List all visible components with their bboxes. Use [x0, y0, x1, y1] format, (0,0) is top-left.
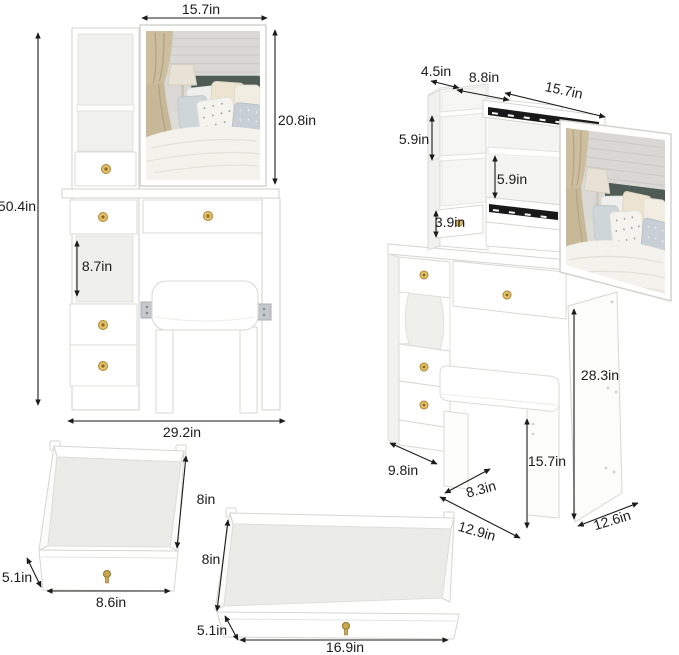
- dim-front-mirror-height: 20.8in: [278, 113, 316, 127]
- side-panel: [568, 292, 622, 522]
- dim-side-stool-height: 15.7in: [528, 454, 566, 468]
- dim-wide-drawer-depth: 8in: [202, 552, 221, 566]
- dim-side-small-drawer: 3.9in: [435, 215, 465, 229]
- dim-small-drawer-width: 8.6in: [96, 595, 126, 609]
- side-wide-drawer: [453, 261, 566, 319]
- front-mirror: [140, 25, 266, 186]
- dim-front-mirror-width: 15.7in: [182, 2, 220, 16]
- front-stool: [141, 281, 271, 413]
- dim-side-desk-height: 28.3in: [581, 368, 619, 382]
- dim-front-total-height: 50.4in: [0, 199, 36, 213]
- side-stool: [440, 366, 559, 518]
- dim-side-middle-shelf: 5.9in: [497, 172, 527, 186]
- dim-front-total-width: 29.2in: [163, 425, 201, 439]
- side-mirror: [560, 120, 671, 308]
- dim-wide-drawer-width: 16.9in: [326, 640, 364, 654]
- dim-side-upper-shelf: 5.9in: [399, 132, 429, 146]
- vanity-dimension-diagram: 15.7in 20.8in 50.4in 8.7in 29.2in 4.5in …: [0, 0, 679, 655]
- front-view-vanity: [62, 25, 280, 413]
- dim-wide-drawer-height: 5.1in: [197, 623, 227, 637]
- dim-small-drawer-depth: 8in: [197, 492, 216, 506]
- dim-front-shelf-height: 8.7in: [82, 259, 112, 273]
- front-open-cubby: [78, 34, 133, 105]
- dim-small-drawer-height: 5.1in: [2, 570, 32, 584]
- small-drawer-illustration: [39, 441, 186, 591]
- wide-drawer-illustration: [215, 508, 459, 639]
- dim-side-top-shelf-width: 8.8in: [469, 70, 499, 84]
- dim-side-top-shelf-depth: 4.5in: [421, 64, 451, 78]
- front-desk-top: [62, 189, 279, 198]
- front-mirror-reflection: [146, 31, 262, 180]
- front-open-cubby: [78, 111, 133, 151]
- dim-side-cabinet-depth: 9.8in: [388, 463, 418, 477]
